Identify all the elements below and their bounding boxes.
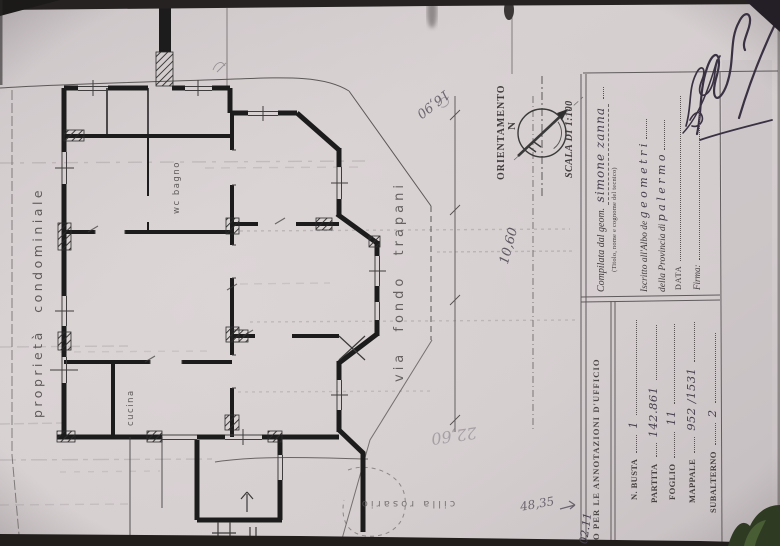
leader-line <box>703 333 716 403</box>
leader-line <box>644 325 657 380</box>
north-letter: N <box>506 122 518 130</box>
leader-line <box>682 322 695 362</box>
field-row-partita: PARTITA 142.861 <box>644 323 662 503</box>
field-row-busta: N. BUSTA 1 <box>624 318 642 500</box>
field-row-foglio: FOGLIO 11 <box>662 322 680 500</box>
leader-line <box>644 444 657 458</box>
date-row: DATA <box>674 94 683 290</box>
field-label: FOGLIO <box>667 464 677 500</box>
orientation-label: ORIENTAMENTO <box>496 84 507 180</box>
field-label: SUBALTERNO <box>708 451 718 513</box>
scale-label: SCALA DI 1:100 <box>564 100 575 178</box>
signature-label: Firma: <box>692 265 702 291</box>
leader-line <box>624 435 637 453</box>
albo-label: Iscritto all'Albo de <box>640 221 650 292</box>
street-label: via fondo trapani <box>392 181 407 382</box>
field-value: 2 <box>705 409 719 417</box>
compiled-by-value: simone zanna <box>593 104 609 205</box>
leader-line <box>639 119 647 139</box>
field-row-subalterno: SUBALTERNO 2 <box>703 331 721 513</box>
field-value: 142.861 <box>646 386 660 437</box>
compiled-by-note: (Titolo, nome e cognome del tecnico) <box>611 167 618 272</box>
owner-name-label: cilla rosario <box>342 498 472 509</box>
province-row: della Provincia di p a l e r m o <box>655 118 668 292</box>
albo-value: g e o m e t r i <box>637 144 650 219</box>
leader-line <box>703 423 716 445</box>
albo-row: Iscritto all'Albo de g e o m e t r i <box>637 117 650 292</box>
leader-line <box>657 120 665 150</box>
room-wc-label: wc bagno <box>172 161 182 214</box>
leader-line <box>662 324 675 404</box>
room-kitchen-label: cucina <box>126 389 136 426</box>
province-value: p a l e r m o <box>655 154 668 221</box>
property-boundary-label: proprietà condominiale <box>30 187 45 418</box>
field-label: PARTITA <box>649 464 659 504</box>
date-label: DATA <box>674 266 683 290</box>
leader-line <box>662 432 675 458</box>
compiled-by-label: Compilata dal geom. <box>596 208 607 292</box>
field-row-mappale: MAPPALE 952 /1531 <box>682 320 700 503</box>
province-label: della Provincia di <box>658 224 668 292</box>
signature-row: Firma: <box>692 108 702 290</box>
compiled-by-row: Compilata dal geom. simone zanna <box>593 85 607 292</box>
field-value: 952 /1531 <box>684 368 698 431</box>
leader-line <box>682 437 695 453</box>
leader-line <box>624 320 637 415</box>
field-label: MAPPALE <box>687 459 697 503</box>
document-photo: proprietà condominiale via fondo trapani… <box>0 0 780 546</box>
office-box-header: O PER LE ANNOTAZIONI D'UFFICIO <box>591 358 601 540</box>
field-value: 1 <box>626 421 640 429</box>
field-value: 11 <box>664 410 678 426</box>
field-label: N. BUSTA <box>629 459 639 500</box>
leader-line <box>596 87 604 99</box>
leader-line <box>693 110 700 260</box>
leader-line <box>674 96 681 261</box>
